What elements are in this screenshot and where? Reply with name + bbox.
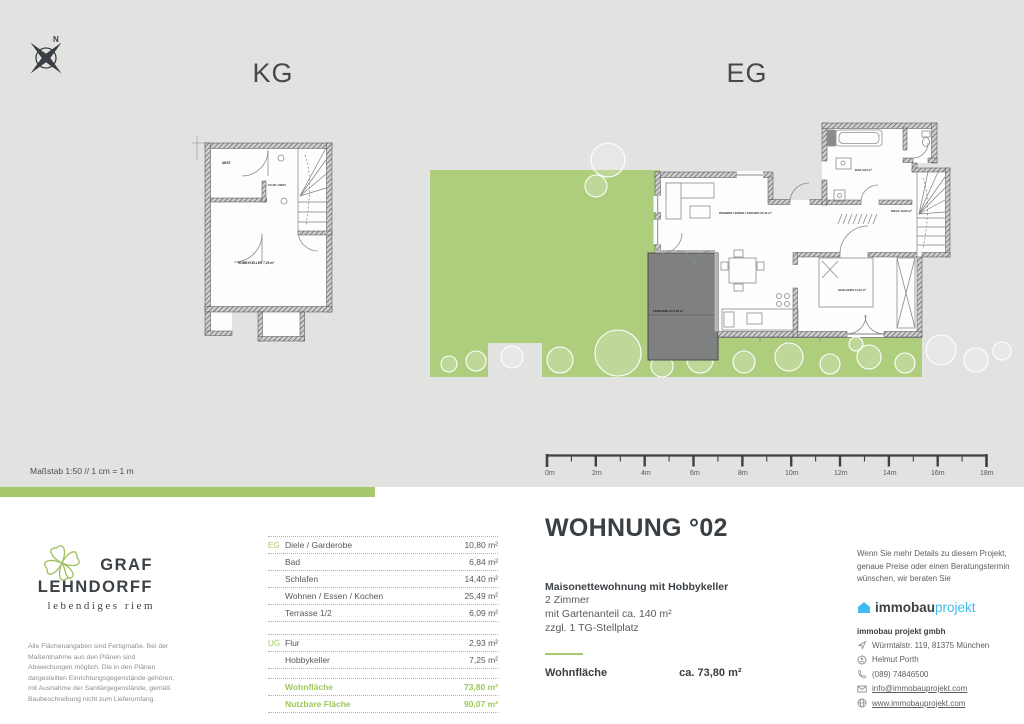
plans-drawing: N <box>0 0 1024 487</box>
living-area-value: ca. 73,80 m² <box>679 667 741 679</box>
apartment-detail-line: zzgl. 1 TG-Stellplatz <box>545 621 835 635</box>
svg-text:18m: 18m <box>980 470 994 477</box>
location-arrow-icon <box>857 640 867 650</box>
plans-panel: N <box>0 0 1024 487</box>
kg-label-abst: ABST. <box>222 161 231 165</box>
contact-person: Helmut Porth <box>857 655 1017 665</box>
eg-label-bad: BAD 6,84 m² <box>855 168 872 172</box>
group-label: UG <box>268 639 285 648</box>
scale-bar: 0m 2m 4m 6m 8m 10m 12m 14m 16m 18m <box>545 454 994 477</box>
table-row: Bad 6,84 m² <box>268 554 498 571</box>
table-row: Terrasse 1/2 6,09 m² <box>268 605 498 622</box>
contact-phone: (089) 74846500 <box>857 669 1017 679</box>
table-row: UG Flur 2,93 m² <box>268 634 498 652</box>
svg-text:16m: 16m <box>931 470 945 477</box>
contact-address: Würmtalstr. 119, 81375 München <box>857 640 1017 650</box>
table-total-row: Nutzbare Fläche 90,07 m² <box>268 696 498 713</box>
eg-plan-heading: EG <box>712 58 782 89</box>
table-row: Hobbykeller 7,25 m² <box>268 652 498 669</box>
svg-text:0m: 0m <box>545 470 555 477</box>
table-row: Wohnen / Essen / Kochen 25,49 m² <box>268 588 498 605</box>
house-icon <box>857 601 871 614</box>
svg-text:12m: 12m <box>834 470 848 477</box>
eg-label-diele: DIELE 10,80 m² <box>891 209 912 213</box>
apartment-headline: Maisonettewohnung mit Hobbykeller <box>545 581 835 593</box>
kg-label-hobby: HOBBYKELLER 7,25 m² <box>238 261 274 265</box>
contact-intro: Wenn Sie mehr Details zu diesem Projekt,… <box>857 548 1017 586</box>
compass-icon: N <box>28 35 64 76</box>
svg-text:4m: 4m <box>641 470 651 477</box>
clover-icon <box>36 536 88 584</box>
kg-plan: ABST. FLUR / ABST. HOBBYKELLER 7,25 m² <box>192 136 332 341</box>
living-area-label: Wohnfläche <box>545 667 607 679</box>
contact-block: Wenn Sie mehr Details zu diesem Projekt,… <box>857 548 1017 708</box>
table-total-row: Wohnfläche 73,80 m² <box>268 678 498 696</box>
svg-text:8m: 8m <box>738 470 748 477</box>
immobau-logo: immobauprojekt <box>857 600 1017 615</box>
person-icon <box>857 655 867 665</box>
floorplan-sheet: N <box>0 0 1024 724</box>
disclaimer-text: Alle Flächenangaben sind Fertigmaße. Bei… <box>28 642 180 705</box>
svg-text:2m: 2m <box>592 470 602 477</box>
eg-label-schlafen: SCHLAFEN 14,40 m² <box>838 288 866 292</box>
apartment-info: WOHNUNG °02 Maisonettewohnung mit Hobbyk… <box>545 514 835 679</box>
svg-text:10m: 10m <box>785 470 799 477</box>
svg-text:14m: 14m <box>883 470 897 477</box>
eg-label-wohnen: WOHNEN / ESSEN / KOCHEN 25,49 m² <box>719 211 772 215</box>
phone-icon <box>857 669 867 679</box>
kg-plan-heading: KG <box>238 58 308 89</box>
eg-terrace <box>648 253 718 360</box>
green-rule <box>545 653 583 655</box>
table-row: Schlafen 14,40 m² <box>268 571 498 588</box>
eg-label-terrasse: TERRASSE 1/2 6,09 m² <box>653 309 683 313</box>
contact-website-link[interactable]: www.immobauprojekt.com <box>857 698 1017 708</box>
contact-email-link[interactable]: info@immobauprojekt.com <box>857 684 1017 694</box>
envelope-icon <box>857 684 867 694</box>
room-table: EG Diele / Garderobe 10,80 m² Bad 6,84 m… <box>268 536 498 713</box>
page-title: WOHNUNG °02 <box>545 514 835 543</box>
eg-plan: TERRASSE 1/2 6,09 m² <box>648 123 950 360</box>
green-divider-bar <box>0 487 375 497</box>
apartment-detail-line: mit Gartenanteil ca. 140 m² <box>545 607 835 621</box>
table-row: EG Diele / Garderobe 10,80 m² <box>268 536 498 554</box>
svg-text:6m: 6m <box>690 470 700 477</box>
compass-north-label: N <box>53 35 59 44</box>
kg-label-flur: FLUR / ABST. <box>268 183 287 187</box>
group-label: EG <box>268 541 285 550</box>
globe-icon <box>857 698 867 708</box>
apartment-detail-line: 2 Zimmer <box>545 593 835 607</box>
scale-note: Maßstab 1:50 // 1 cm = 1 m <box>30 466 134 476</box>
brand-tagline: lebendiges riem <box>28 600 173 612</box>
brand-block: GRAF LEHNDORFF lebendiges riem <box>28 540 173 612</box>
company-name: immobau projekt gmbh <box>857 627 1017 636</box>
